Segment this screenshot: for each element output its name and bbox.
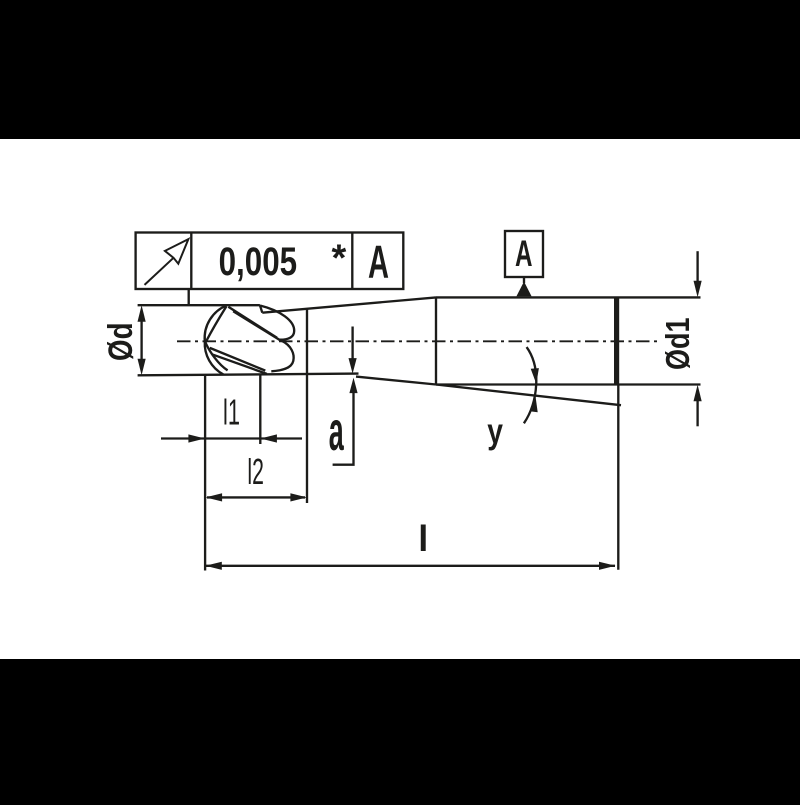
svg-text:l1: l1 [223,392,240,433]
svg-text:*: * [332,238,347,280]
svg-text:l: l [418,518,428,559]
svg-text:Ød1: Ød1 [659,318,696,371]
svg-text:A: A [515,233,533,274]
svg-text:l2: l2 [247,451,264,492]
svg-text:Ød: Ød [102,323,140,362]
svg-text:a: a [329,399,344,462]
svg-text:0,005: 0,005 [219,240,298,284]
svg-text:A: A [368,235,389,287]
svg-text:y: y [487,412,503,451]
